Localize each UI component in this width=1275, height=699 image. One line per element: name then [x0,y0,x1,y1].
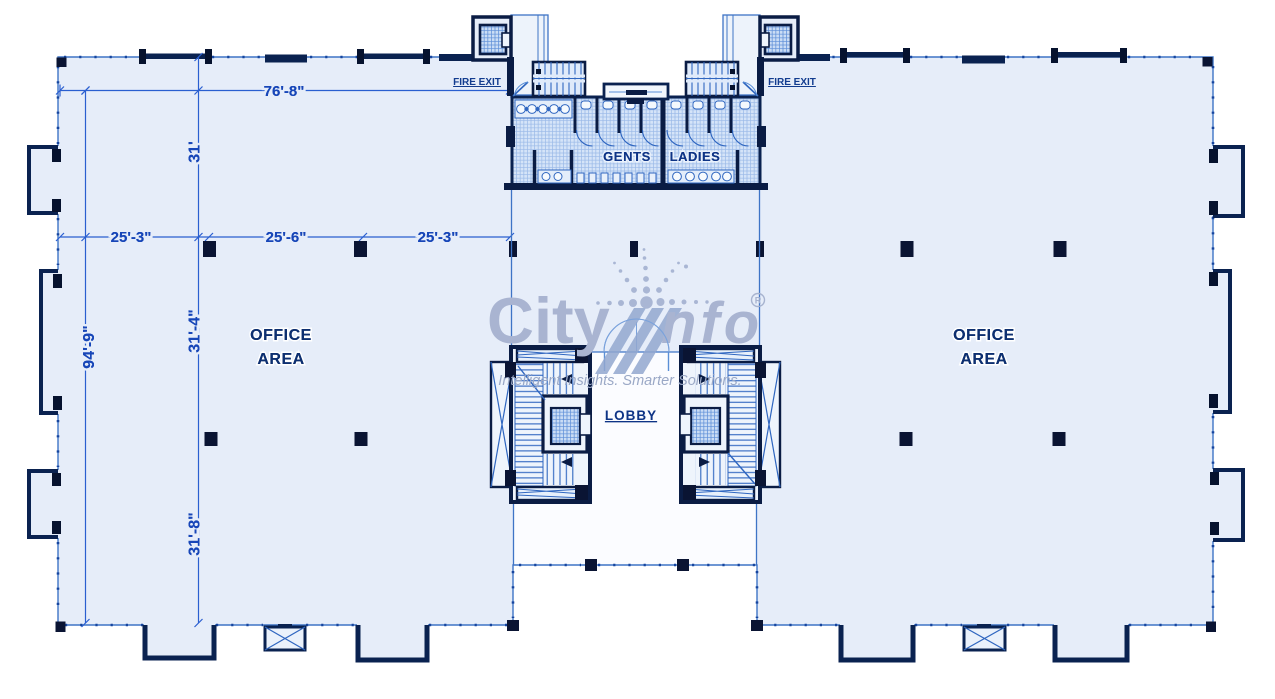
svg-text:OFFICE: OFFICE [250,327,312,344]
svg-text:25'-3": 25'-3" [111,229,152,246]
svg-text:nfo: nfo [661,291,763,356]
svg-text:AREA: AREA [960,351,1007,368]
svg-text:76'-8": 76'-8" [264,83,305,100]
svg-text:94'-9": 94'-9" [81,325,98,368]
svg-text:25'-6": 25'-6" [266,229,307,246]
svg-text:LOBBY: LOBBY [605,408,657,423]
svg-text:LADIES: LADIES [670,149,721,164]
svg-text:31': 31' [187,141,204,163]
svg-text:31'-4": 31'-4" [187,309,204,352]
svg-text:31'-8": 31'-8" [187,512,204,555]
svg-text:R: R [755,296,762,306]
svg-text:City: City [487,284,610,357]
svg-text:25'-3": 25'-3" [418,229,459,246]
svg-text:Intelligent Insights. Smarter: Intelligent Insights. Smarter Solutions. [498,373,741,389]
svg-text:OFFICE: OFFICE [953,327,1015,344]
svg-text:FIRE EXIT: FIRE EXIT [453,77,501,88]
svg-text:FIRE EXIT: FIRE EXIT [768,77,816,88]
svg-text:GENTS: GENTS [603,149,651,164]
svg-text:AREA: AREA [257,351,304,368]
